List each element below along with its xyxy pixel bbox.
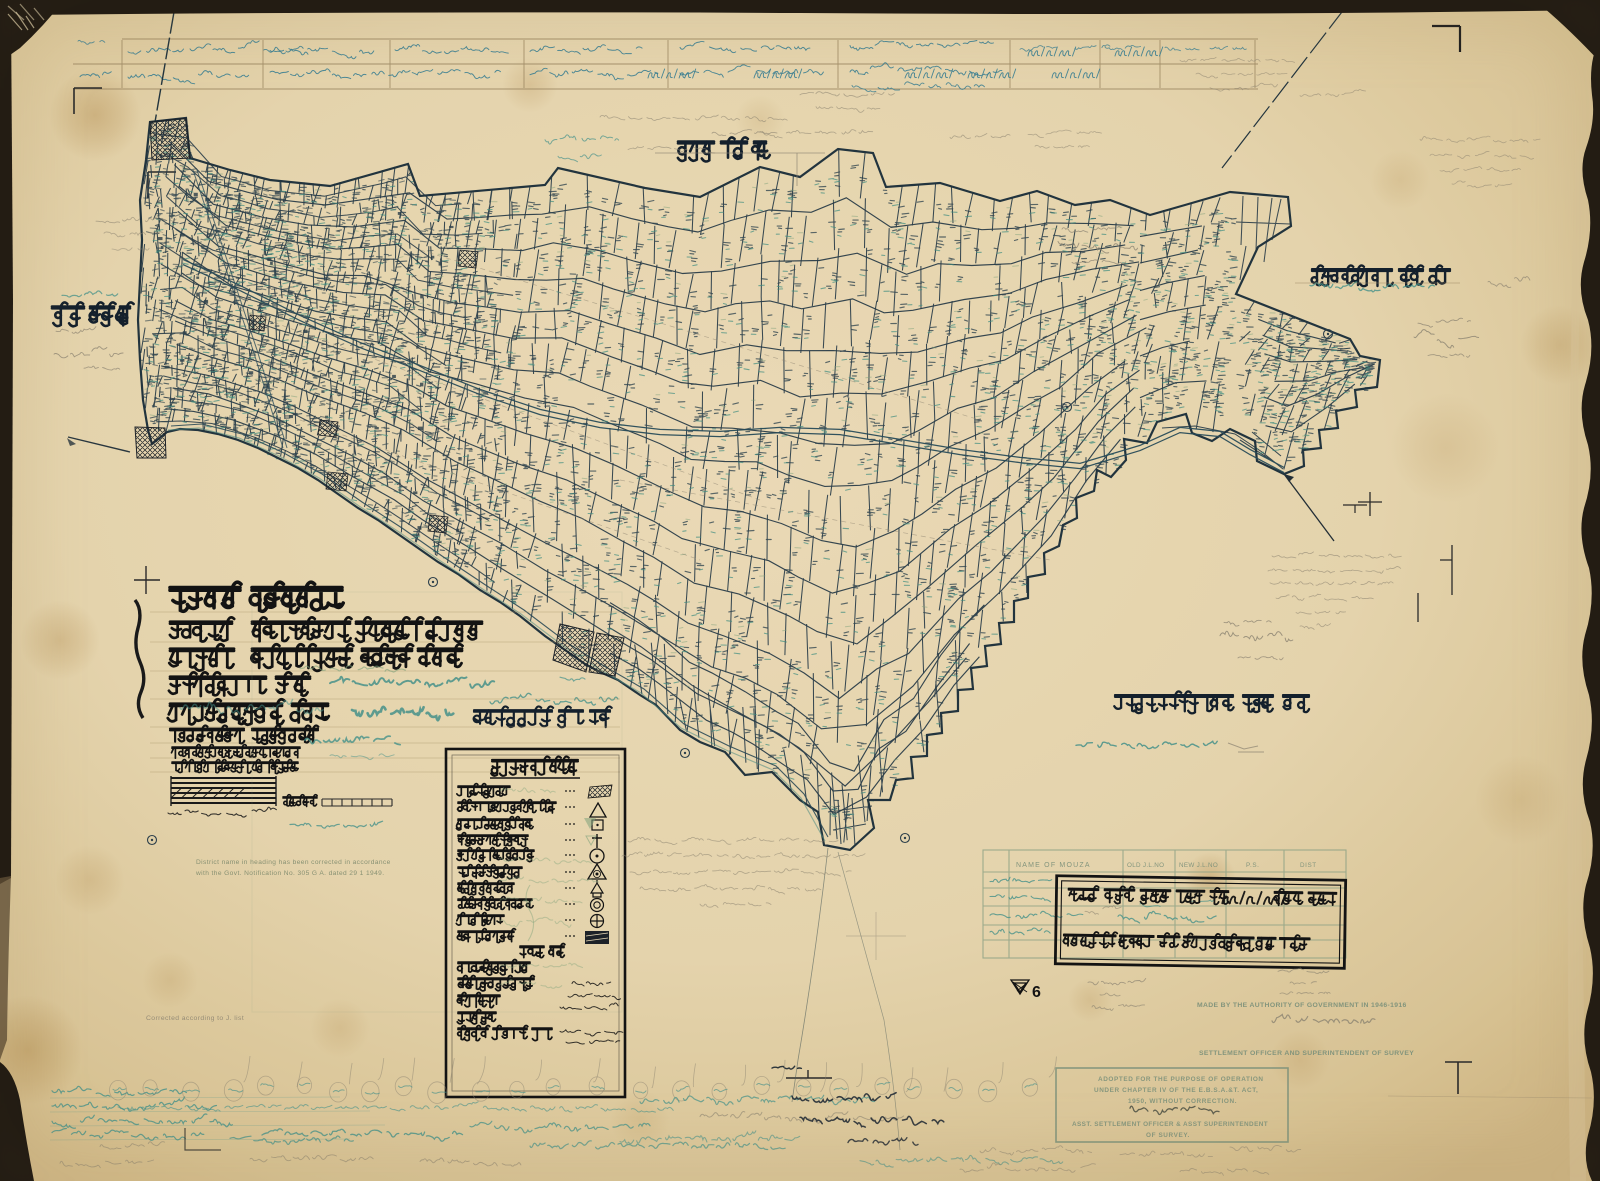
svg-text:SETTLEMENT OFFICER AND SUPERIN: SETTLEMENT OFFICER AND SUPERINTENDENT OF…	[1199, 1050, 1414, 1057]
svg-text:ADOPTED FOR THE PURPOSE OF OPE: ADOPTED FOR THE PURPOSE OF OPERATION	[1098, 1076, 1264, 1083]
svg-text:NAME OF MOUZA: NAME OF MOUZA	[1016, 862, 1091, 869]
svg-text:MADE BY THE AUTHORITY OF GOVER: MADE BY THE AUTHORITY OF GOVERNMENT IN 1…	[1197, 1002, 1407, 1009]
svg-text:ASST. SETTLEMENT OFFICER & ASS: ASST. SETTLEMENT OFFICER & ASST SUPERINT…	[1072, 1121, 1268, 1128]
svg-text:DIST: DIST	[1300, 862, 1317, 869]
svg-text:NEW J.L.NO: NEW J.L.NO	[1179, 862, 1218, 869]
svg-text:1950, WITHOUT CORRECTION.: 1950, WITHOUT CORRECTION.	[1128, 1098, 1237, 1105]
svg-text:6: 6	[1032, 984, 1041, 1001]
svg-text:Corrected according to J. list: Corrected according to J. list	[146, 1015, 244, 1022]
svg-text:OLD J.L.NO: OLD J.L.NO	[1127, 862, 1164, 869]
svg-text:District name in heading has b: District name in heading has been correc…	[196, 859, 391, 866]
svg-text:OF SURVEY.: OF SURVEY.	[1146, 1132, 1190, 1139]
svg-text:P.S.: P.S.	[1246, 862, 1260, 869]
svg-text:with the Govt. Notification No: with the Govt. Notification No. 305 G A.…	[195, 870, 384, 877]
svg-text:UNDER CHAPTER IV OF THE E.B.S.: UNDER CHAPTER IV OF THE E.B.S.A.&T. ACT,	[1094, 1087, 1258, 1094]
